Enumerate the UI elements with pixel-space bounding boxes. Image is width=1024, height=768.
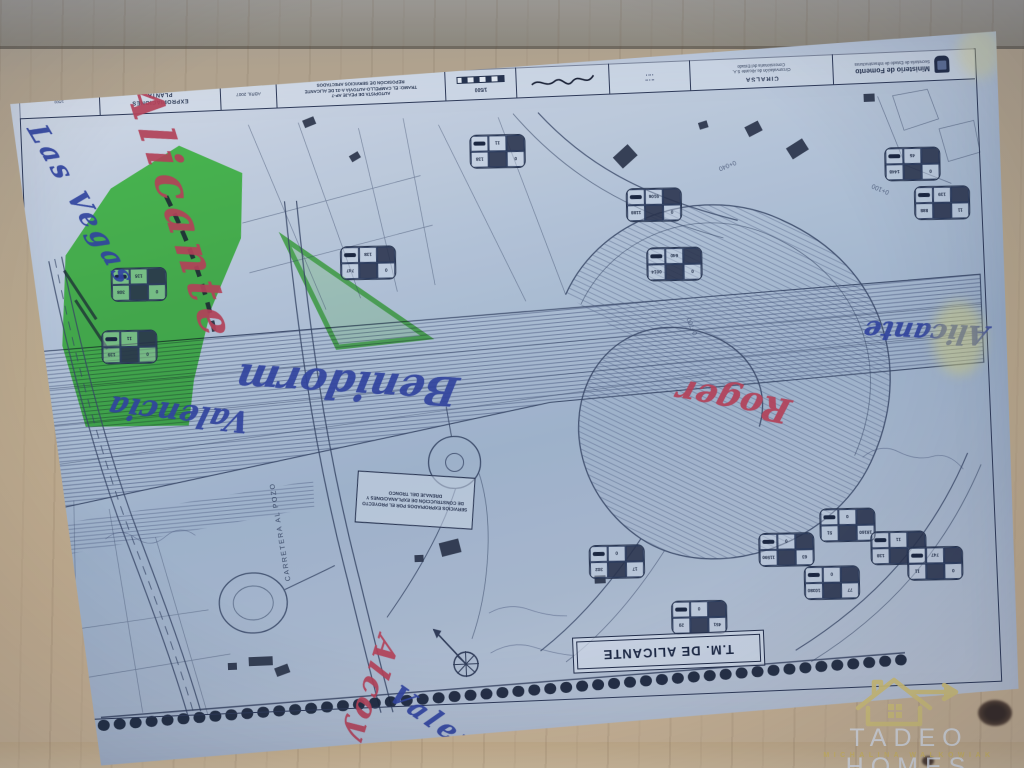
parcel-info-box: 011747	[907, 546, 964, 581]
photo-of-map-on-table: 0+040 0+100 0+700 1/500 EXPROPIACIONES	[0, 0, 1024, 768]
expropriation-plan-sheet: 0+040 0+100 0+700 1/500 EXPROPIACIONES	[0, 31, 1024, 768]
parcel-info-box: 173020	[589, 544, 646, 579]
scale-cell: 1/500	[445, 67, 517, 100]
concessionaire-cell: CIRALSA Circunvalación de Alicante S.A. …	[690, 54, 834, 90]
house-arrow-icon	[848, 672, 970, 730]
ministry-cell: Ministerio de Fomento Secretaría de Esta…	[833, 48, 975, 84]
municipality-label: T.M. DE ALICANTE	[603, 641, 735, 661]
title-block-corner-cell: 1/500	[19, 85, 101, 118]
signature-cell	[516, 64, 610, 98]
yellow-stain	[14, 408, 48, 505]
scale-value: 1/500	[475, 85, 488, 92]
scale-bar	[456, 75, 504, 84]
signature-squiggle	[527, 69, 598, 92]
agency-watermark: TADEO HOMES MICHALINA WALKOWIAK	[790, 680, 1024, 766]
plan-date: ABRIL 2007	[236, 90, 261, 97]
parcel-info-box: 0747138	[340, 245, 397, 280]
parcel-info-box: 11888139	[914, 185, 971, 220]
date-cell: ABRIL 2007	[220, 78, 277, 110]
parcel-info-box: 451200	[671, 600, 728, 635]
ministry-crest-icon	[934, 56, 950, 74]
parcel-info-box: 011889106	[626, 187, 683, 222]
project-title-cell: AUTOPISTA DE PEAJE AP-7 TRAMO: EL CAMPEL…	[276, 70, 446, 107]
watermark-title: TADEO HOMES	[790, 724, 1024, 768]
parcel-info-box: 77103800	[804, 565, 861, 600]
services-note-box: SERVICIOS EXPROPIADOS POR EL PROYECTO DE…	[355, 470, 476, 529]
parcel-info-box: 00014640	[646, 247, 703, 282]
parcel-info-box: 0144845	[884, 147, 941, 182]
parcel-info-box: 18160510	[819, 508, 876, 543]
logos-cell: ▪▪ ▪ ▪▪▪ ▪▪ ▪	[609, 60, 691, 93]
parcel-info-box: 63115900	[758, 532, 815, 567]
parcel-info-box: 013811	[469, 134, 526, 169]
company-name: CIRALSA	[745, 73, 779, 82]
watermark-subtitle: MICHALINA WALKOWIAK	[790, 752, 1024, 759]
parcel-info-box: 013911	[101, 329, 158, 364]
